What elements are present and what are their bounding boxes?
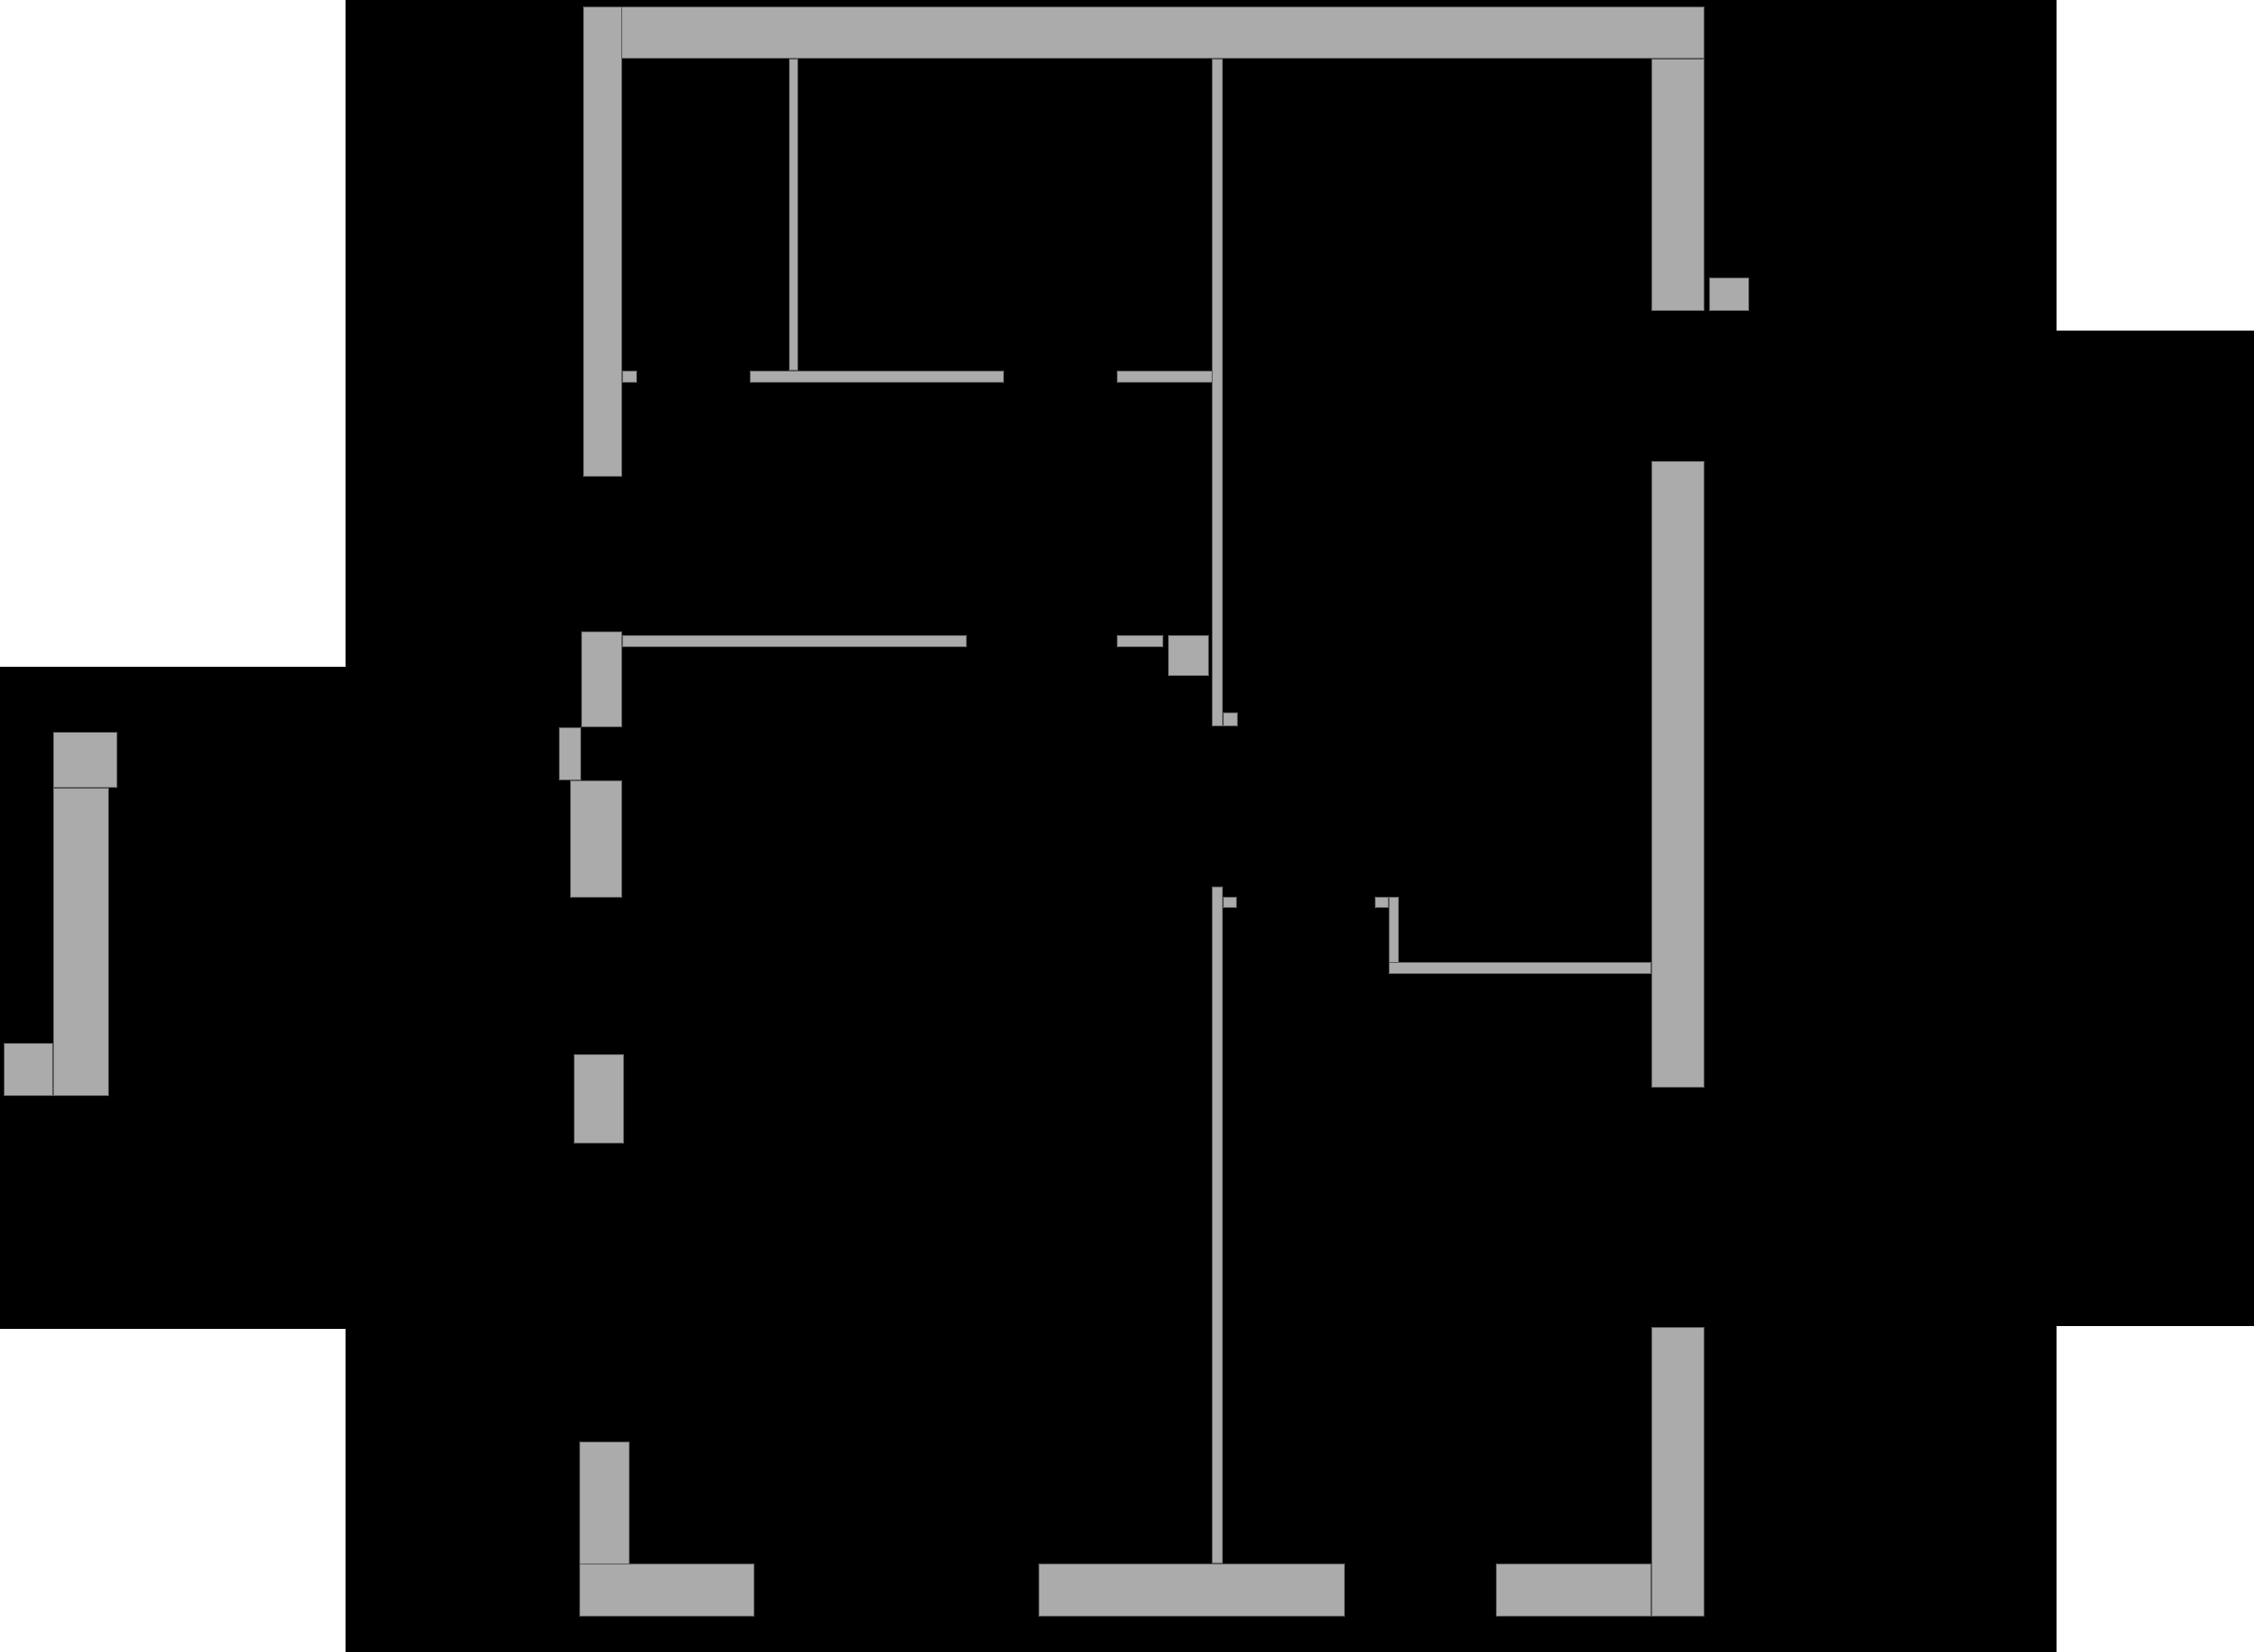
bay-window-top [53,732,117,788]
center-wall-upper [1212,59,1223,726]
outside-bottom-right [2057,1326,2254,1652]
right-corridor-wall [1389,962,1651,974]
right-wall-lower [1651,1327,1704,1617]
lower-partition-right [1117,635,1163,647]
center-pillar-square [1168,635,1209,676]
left-wall-middle-lower [570,780,622,898]
bay-window-column [53,788,109,1096]
bedroom-divider-wall [789,59,798,371]
right-wall-lower-foot [1496,1564,1651,1617]
center-wall-lower-door-tab [1223,897,1237,908]
left-wall-middle-tab [559,727,581,780]
right-wall-middle [1651,461,1704,1088]
upper-partition-right [1117,371,1223,383]
left-door-jamb [574,1054,624,1144]
hall-stub-tab [1375,897,1389,908]
outside-bottom-left [0,1329,346,1652]
center-wall-lower [1212,887,1223,1564]
lower-partition-left [622,635,967,647]
top-wall-band [583,7,1704,59]
right-pillar-square [1709,278,1749,311]
bottom-left-wall-foot [579,1564,754,1617]
outside-top-right [2057,0,2254,331]
center-wall-upper-door-tab [1223,712,1238,726]
upper-partition-left [750,371,1004,383]
right-wall-upper [1651,59,1704,311]
bottom-wall-center [1039,1564,1345,1617]
left-wall-upper-door-tab [622,371,637,383]
left-wall-middle-upper [581,631,622,727]
outside-top-left [0,0,346,667]
floor-plan-canvas [0,0,2254,1652]
bay-window-foot [4,1043,53,1096]
left-wall-upper [583,7,622,477]
